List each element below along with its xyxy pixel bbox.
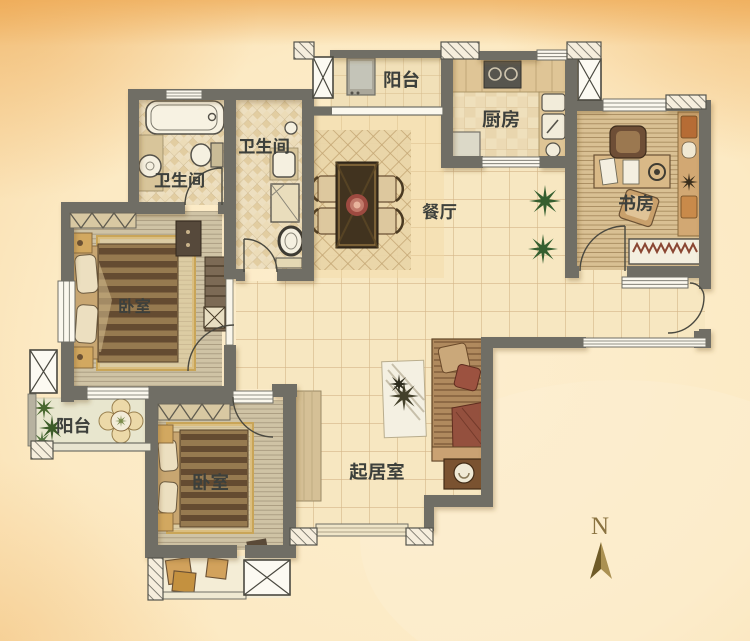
svg-text:N: N bbox=[591, 513, 609, 540]
